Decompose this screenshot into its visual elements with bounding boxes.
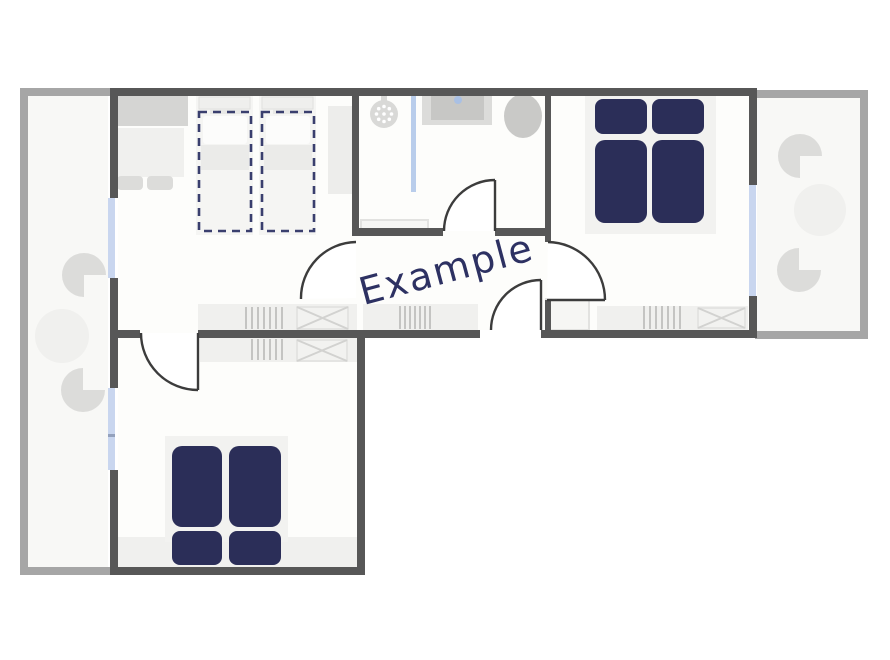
wall-segment	[110, 96, 118, 198]
balcony-right	[755, 90, 868, 339]
window	[108, 198, 115, 278]
headboard	[262, 97, 313, 109]
wall-segment	[352, 88, 359, 236]
wall-segment	[545, 300, 551, 338]
wall-segment	[198, 330, 480, 338]
wall-segment	[357, 330, 365, 575]
wall-segment	[110, 470, 118, 575]
blanket	[264, 145, 312, 170]
window-mullion	[108, 434, 115, 437]
floor-plan: Example	[0, 0, 890, 660]
toilet-icon	[504, 94, 542, 138]
window	[108, 388, 115, 470]
bed-pillow	[652, 99, 704, 134]
bed-mattress	[229, 446, 281, 527]
patio-table-icon	[35, 309, 89, 363]
pillow	[203, 116, 247, 144]
headboard	[199, 97, 250, 109]
wall-segment	[110, 330, 140, 338]
kitchen-stool	[117, 176, 143, 190]
radiator-icon	[644, 306, 680, 329]
wall-segment	[110, 567, 365, 575]
wall-segment	[749, 96, 757, 185]
wall-segment	[545, 88, 551, 242]
shower-glass	[411, 92, 416, 192]
floor-plan-canvas: Example	[0, 0, 890, 660]
bed-mattress	[172, 446, 222, 527]
kitchen-stool	[147, 176, 173, 190]
blanket	[201, 145, 249, 170]
kitchen-table	[118, 128, 184, 177]
bed-pillow	[229, 531, 281, 565]
window	[749, 185, 756, 296]
shower-nozzles	[375, 105, 394, 124]
pillow	[266, 116, 310, 144]
balcony-left	[20, 88, 110, 575]
radiator-icon	[246, 307, 282, 329]
bed-pillow	[595, 99, 647, 134]
faucet-icon	[454, 96, 462, 104]
kitchen-counter	[118, 96, 188, 126]
bed-mattress	[652, 140, 704, 223]
wall-segment	[352, 228, 443, 236]
wall-segment	[110, 88, 757, 96]
patio-table-icon	[794, 184, 846, 236]
bed-pillow	[172, 531, 222, 565]
wardrobe	[328, 106, 356, 194]
radiator-icon	[400, 306, 430, 329]
door-mat	[546, 299, 589, 330]
wall-segment	[541, 330, 757, 338]
bed-mattress	[595, 140, 647, 223]
